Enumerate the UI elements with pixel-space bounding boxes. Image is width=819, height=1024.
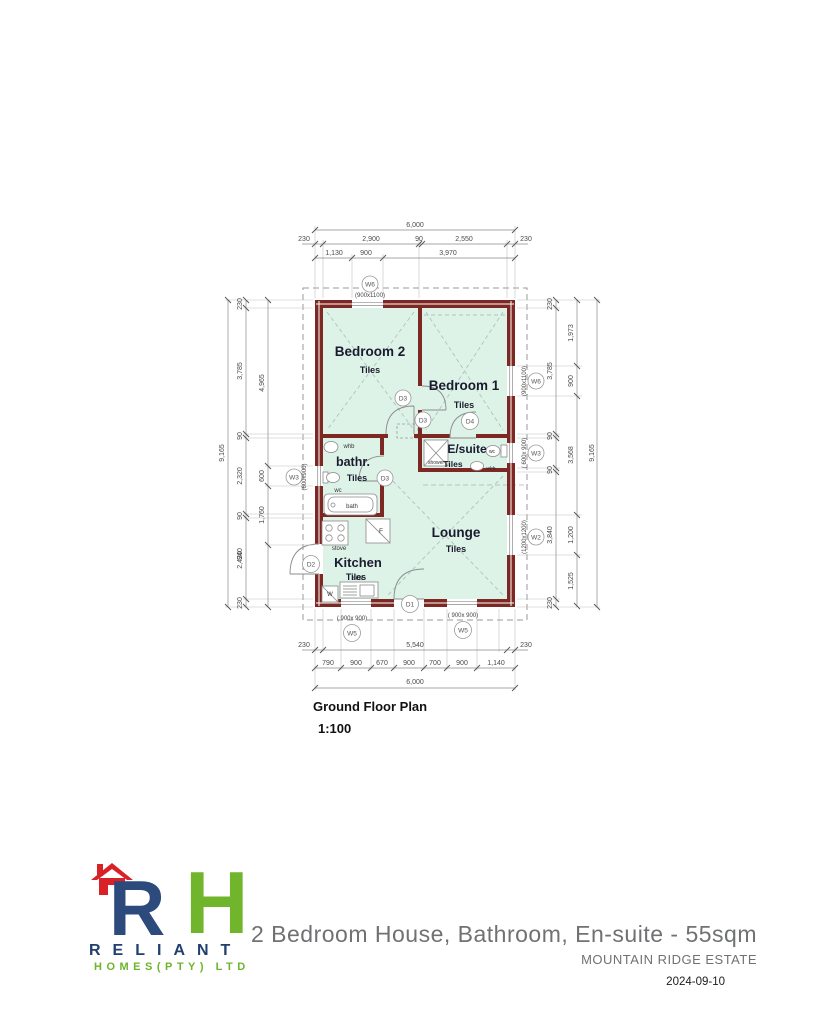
dim-label: 3,970: [439, 250, 457, 257]
label-washer: W: [327, 592, 333, 598]
dimension-labels-bottom: 230 5,540 230 790 900 670 900 700 900 1,…: [298, 642, 532, 686]
ensuite-basin: [471, 462, 484, 471]
tag-text: W5: [458, 628, 468, 635]
window-size: (900x1100): [522, 366, 528, 396]
tag-text: W6: [531, 379, 541, 386]
dim-label: 9,165: [219, 444, 226, 462]
dim-label: 790: [322, 660, 334, 667]
estate-name: MOUNTAIN RIDGE ESTATE: [197, 952, 757, 967]
dim-label: 900: [568, 375, 575, 387]
bathroom-basin: [324, 442, 338, 453]
dim-label: 2,900: [362, 236, 380, 243]
room-bedroom2-finish: Tiles: [360, 365, 380, 375]
window-size: ( 900x 900): [337, 616, 367, 622]
label-bath: bath: [346, 504, 358, 510]
window-size: (1200x1200): [522, 520, 528, 554]
floor-plan-drawing: whb wc bath shower wc whb stove F sink W…: [0, 0, 819, 770]
dim-label: 4,965: [259, 374, 266, 392]
dim-label: 2,420: [237, 551, 244, 569]
document-title: 2 Bedroom House, Bathroom, En-suite - 55…: [197, 921, 757, 948]
room-bathroom-finish: Tiles: [347, 473, 367, 483]
dim-label: 90: [237, 512, 244, 520]
document-date: 2024-09-10: [197, 976, 757, 988]
dim-label: 2,320: [237, 467, 244, 485]
drawing-sheet: whb wc bath shower wc whb stove F sink W…: [0, 0, 819, 1024]
room-bedroom2: Bedroom 2: [335, 344, 406, 359]
dim-label: 6,000: [406, 222, 424, 229]
tag-text: D4: [466, 419, 475, 426]
bathroom-wc-bowl: [327, 473, 340, 483]
dim-label: 5,540: [406, 642, 424, 649]
label-wc-ensuite: wc: [489, 449, 496, 455]
window-size: (900x1100): [355, 293, 385, 299]
dim-label: 900: [350, 660, 362, 667]
tag-text: D2: [307, 562, 316, 569]
tag-text: W6: [365, 282, 375, 289]
logo-letter-r: R: [109, 869, 165, 947]
dim-label: 90: [415, 236, 423, 243]
dimension-labels-left: 9,165 230 3,785 90 2,320 90 940 2,420 23…: [219, 298, 266, 609]
dim-label: 230: [547, 597, 554, 609]
room-kitchen-finish: Tiles: [346, 572, 366, 582]
dim-label: 230: [237, 597, 244, 609]
ensuite-wc-tank: [501, 445, 507, 457]
tag-text: W5: [347, 631, 357, 638]
label-whb-bath: whb: [342, 444, 355, 450]
dim-label: 900: [360, 250, 372, 257]
dimension-labels-top: 6,000 230 2,900 90 2,550 230 1,130 900 3…: [298, 222, 532, 257]
dim-label: 230: [298, 642, 310, 649]
dim-label: 3,568: [568, 446, 575, 464]
dim-label: 90: [547, 432, 554, 440]
dim-label: 230: [298, 236, 310, 243]
dim-label: 90: [547, 466, 554, 474]
dim-label: 1,973: [568, 324, 575, 342]
plan-scale: 1:100: [318, 721, 427, 736]
dim-label: 9,165: [589, 444, 596, 462]
dim-label: 230: [520, 642, 532, 649]
room-ensuite-finish: Tiles: [443, 459, 462, 469]
tag-text: W2: [531, 535, 541, 542]
stove: [322, 521, 348, 545]
dim-label: 1,760: [259, 506, 266, 524]
dim-label: 3,785: [237, 362, 244, 380]
dim-label: 2,550: [455, 236, 473, 243]
room-bathroom: bathr.: [336, 455, 370, 469]
tag-text: D3: [381, 476, 390, 483]
dimension-labels-right: 230 3,785 90 90 3,840 230 1,973 900 3,56…: [547, 298, 596, 609]
dim-label: 1,140: [487, 660, 505, 667]
label-whb-ensuite: whb: [486, 466, 495, 472]
window-size: ( 600x 900): [522, 438, 528, 468]
label-fridge: F: [379, 528, 383, 535]
label-shower: shower: [428, 460, 444, 466]
room-lounge-finish: Tiles: [446, 544, 466, 554]
dim-label: 6,000: [406, 679, 424, 686]
dim-label: 600: [259, 470, 266, 482]
dim-label: 1,130: [325, 250, 343, 257]
room-kitchen: Kitchen: [334, 555, 382, 570]
dim-label: 230: [547, 298, 554, 310]
label-stove: stove: [332, 546, 347, 552]
dim-label: 900: [456, 660, 468, 667]
dim-label: 230: [520, 236, 532, 243]
tag-text: D3: [419, 418, 428, 425]
tag-text: D3: [399, 396, 408, 403]
title-block: 2 Bedroom House, Bathroom, En-suite - 55…: [197, 921, 757, 988]
tag-text: W3: [289, 475, 299, 482]
room-lounge: Lounge: [432, 525, 481, 540]
dim-label: 230: [237, 298, 244, 310]
window-size: (600x900): [302, 463, 308, 490]
dim-label: 90: [237, 432, 244, 440]
window-size: ( 900x 900): [448, 613, 478, 619]
dim-label: 900: [403, 660, 415, 667]
plan-title: Ground Floor Plan: [313, 699, 427, 714]
tag-text: W3: [531, 451, 541, 458]
room-ensuite: E/suite: [447, 442, 487, 456]
dim-label: 700: [429, 660, 441, 667]
dim-label: 670: [376, 660, 388, 667]
room-bedroom1-finish: Tiles: [454, 400, 474, 410]
room-bedroom1: Bedroom 1: [429, 378, 500, 393]
plan-caption: Ground Floor Plan 1:100: [313, 699, 427, 736]
dim-label: 1,200: [568, 526, 575, 544]
dim-label: 3,840: [547, 526, 554, 544]
sink-unit: [340, 582, 378, 598]
dim-label: 1,525: [568, 572, 575, 590]
dim-label: 3,785: [547, 362, 554, 380]
tag-text: D1: [406, 602, 415, 609]
label-wc-bath: wc: [333, 488, 341, 494]
